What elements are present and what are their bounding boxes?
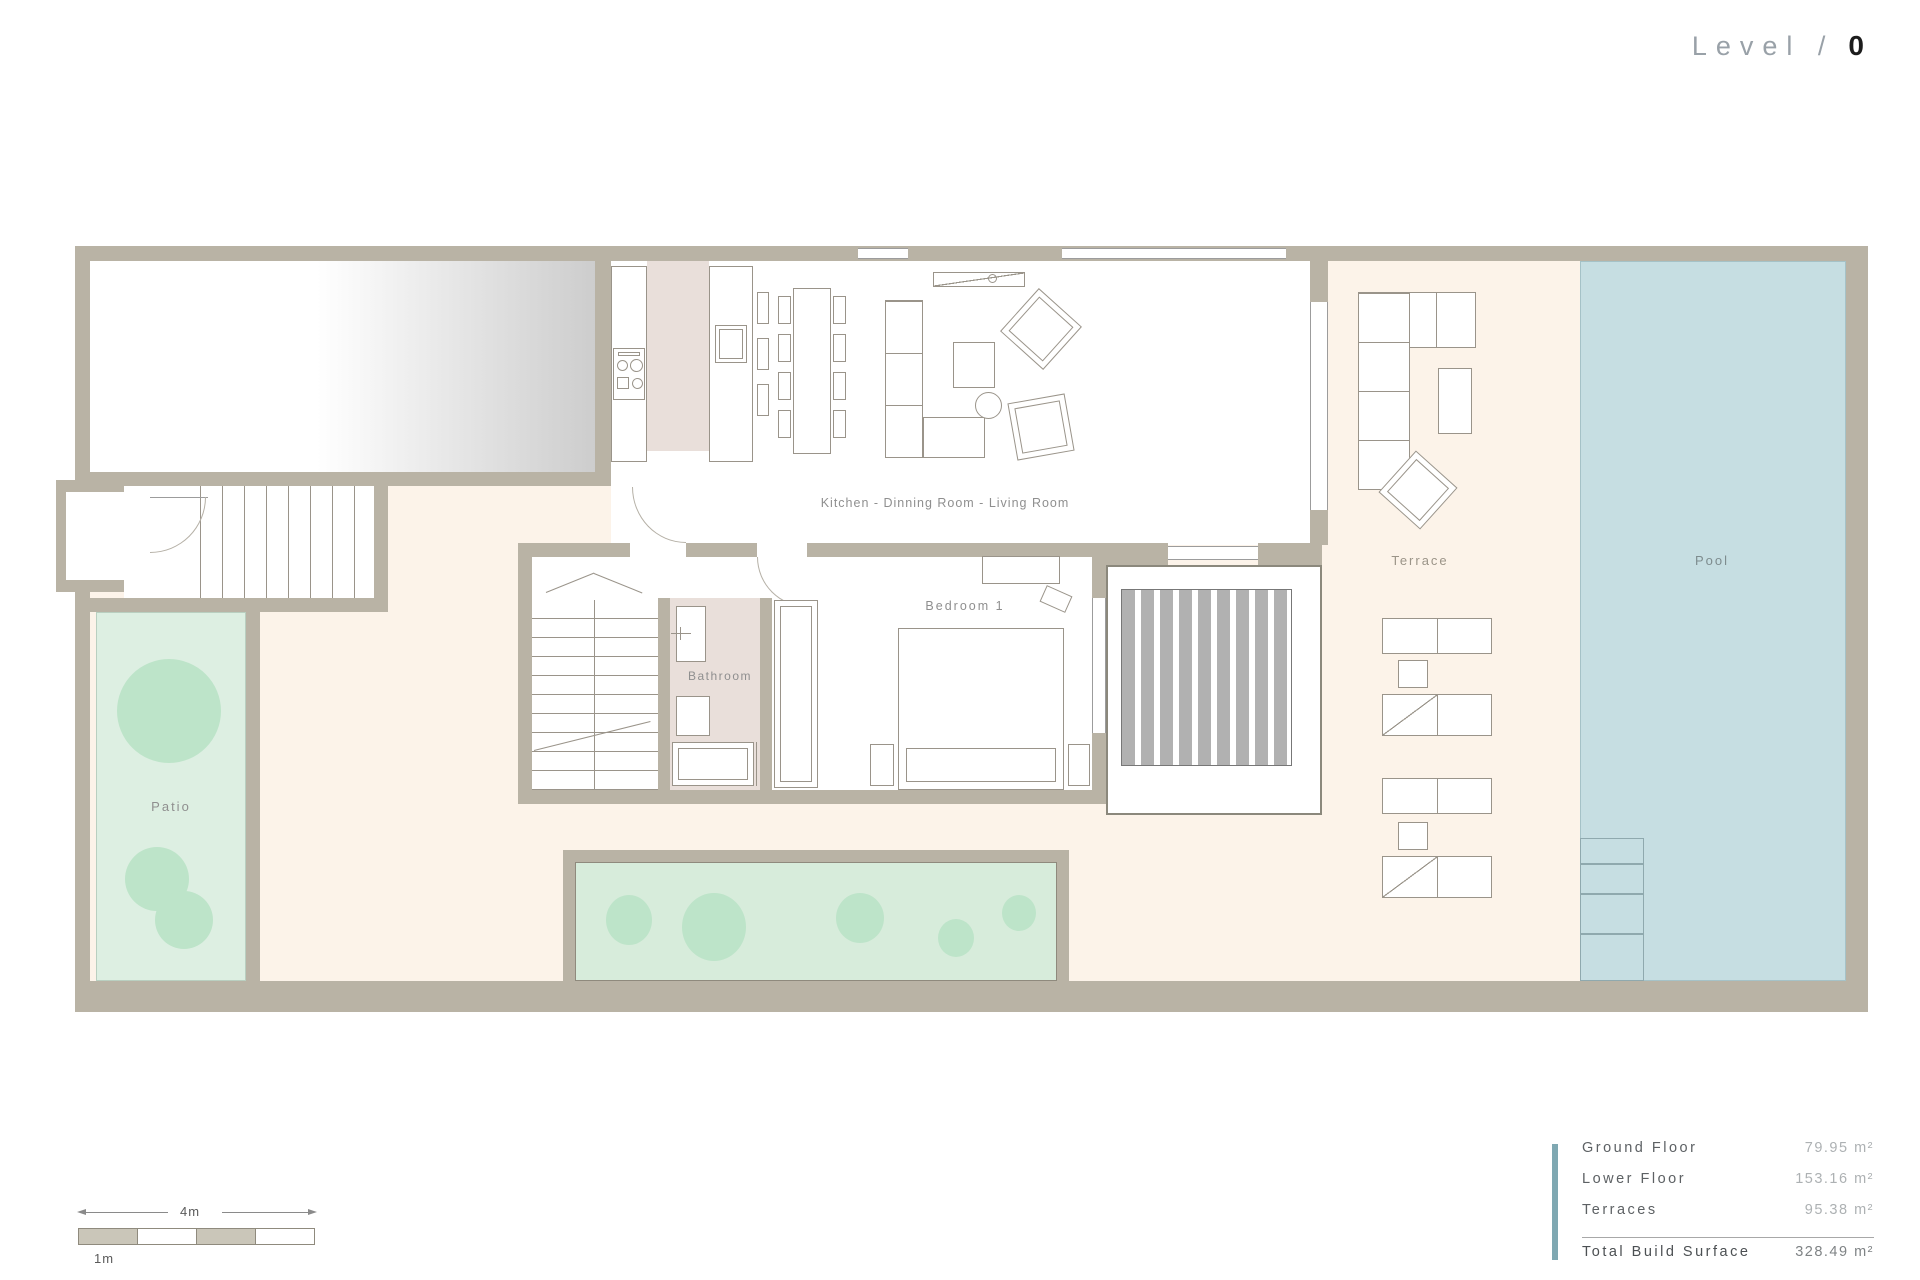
pool-steps xyxy=(1580,934,1644,981)
patio-bush xyxy=(155,891,213,949)
garage-wall-right xyxy=(595,261,611,486)
level-title-prefix: Level / xyxy=(1692,31,1835,62)
dining-chair xyxy=(833,410,846,438)
bedroom-sliding-door xyxy=(1092,598,1106,733)
dining-chair xyxy=(833,334,846,362)
stair-arrow xyxy=(546,572,644,596)
scale-segment xyxy=(137,1228,197,1245)
legend-accent-bar xyxy=(1552,1144,1558,1260)
bedroom-door-gap xyxy=(757,543,807,557)
tv-speaker xyxy=(988,274,997,283)
interior-stairs xyxy=(532,600,658,790)
bath-wardrobe-wall xyxy=(760,598,772,790)
patio-tree xyxy=(117,659,221,763)
pool-steps xyxy=(1580,894,1644,934)
area-legend: Ground Floor 79.95 m² Lower Floor 153.16… xyxy=(1552,1140,1874,1275)
pool-steps xyxy=(1580,864,1644,894)
garage-wall-bottom xyxy=(90,472,611,486)
legend-row-ground-floor: Ground Floor 79.95 m² xyxy=(1582,1140,1874,1171)
sun-loungers xyxy=(1382,778,1492,814)
planter-bush xyxy=(682,893,746,961)
legend-row-lower-floor: Lower Floor 153.16 m² xyxy=(1582,1171,1874,1202)
scale-segment xyxy=(78,1228,138,1245)
sun-loungers xyxy=(1382,694,1492,736)
living-bedroom-wall xyxy=(518,543,1106,557)
scale-segment xyxy=(255,1228,315,1245)
scale-segment xyxy=(196,1228,256,1245)
stairs-bath-wall xyxy=(658,598,670,790)
entry-wall-right xyxy=(374,486,388,612)
bed-pillows xyxy=(906,748,1056,782)
wardrobe xyxy=(774,600,818,788)
dining-chair xyxy=(778,334,791,362)
planter-bush xyxy=(606,895,652,945)
sofa-chaise xyxy=(923,417,985,458)
shower xyxy=(672,742,754,786)
dimension-line xyxy=(222,1212,314,1213)
lounger-table xyxy=(1398,660,1428,688)
patio-wall-right xyxy=(246,598,260,981)
site-wall-left xyxy=(75,246,90,1012)
level-number: 0 xyxy=(1848,30,1866,62)
lounger-table xyxy=(1398,822,1428,850)
legend-label: Terraces xyxy=(1582,1202,1658,1218)
bathroom-label: Bathroom xyxy=(668,669,772,683)
pool-label: Pool xyxy=(1662,553,1762,568)
kitchen-island xyxy=(709,266,753,462)
dimension-line xyxy=(80,1212,168,1213)
legend-value: 79.95 m² xyxy=(1805,1140,1874,1156)
legend-label: Total Build Surface xyxy=(1582,1244,1750,1260)
coffee-table xyxy=(953,342,995,388)
legend-label: Lower Floor xyxy=(1582,1171,1686,1187)
level-title: Level / 0 xyxy=(1692,30,1866,62)
lower-wall-left xyxy=(518,543,532,804)
scale-total-label: 4m xyxy=(180,1204,200,1219)
legend-divider xyxy=(1582,1237,1874,1238)
bar-stool xyxy=(757,384,769,416)
site-wall-top xyxy=(75,246,1868,261)
nightstand xyxy=(1068,744,1090,786)
living-window xyxy=(1310,302,1328,510)
tv-unit xyxy=(933,272,1025,287)
patio-label: Patio xyxy=(121,799,221,814)
legend-row-terraces: Terraces 95.38 m² xyxy=(1582,1202,1874,1233)
stove-icon xyxy=(613,348,645,400)
legend-value: 328.49 m² xyxy=(1795,1244,1874,1260)
courtyard-wall-top-right xyxy=(1258,543,1322,565)
toilet xyxy=(676,696,710,736)
bathroom-sink xyxy=(676,606,706,662)
garage-area xyxy=(90,261,595,472)
top-window xyxy=(1062,248,1286,259)
floor-plan-page: { "title": { "prefix": "Level /", "level… xyxy=(0,0,1920,1280)
deck-slats xyxy=(1121,589,1292,766)
stair-direction-line xyxy=(534,721,651,751)
sofa xyxy=(885,300,923,458)
dining-table xyxy=(793,288,831,454)
kitchen-living-label: Kitchen - Dinning Room - Living Room xyxy=(795,496,1095,510)
site-wall-right xyxy=(1846,246,1868,1012)
legend-label: Ground Floor xyxy=(1582,1140,1697,1156)
entry-wall-bottom xyxy=(90,598,388,612)
bar-stool xyxy=(757,338,769,370)
legend-row-total: Total Build Surface 328.49 m² xyxy=(1582,1244,1874,1275)
sun-loungers xyxy=(1382,618,1492,654)
terrace-side-table xyxy=(1438,368,1472,434)
pouf xyxy=(975,392,1002,419)
top-window xyxy=(858,248,908,259)
dining-chair xyxy=(833,372,846,400)
entry-porch-floor xyxy=(66,492,124,580)
courtyard-sliding-door xyxy=(1168,546,1258,560)
dining-chair xyxy=(778,372,791,400)
pool-steps xyxy=(1580,838,1644,864)
patio-area xyxy=(96,612,246,981)
armchair xyxy=(1007,393,1074,460)
scale-unit-label: 1m xyxy=(94,1251,114,1266)
hall-door-gap xyxy=(630,543,686,557)
dining-chair xyxy=(778,410,791,438)
planter-bed xyxy=(575,862,1057,981)
planter-bush xyxy=(1002,895,1036,931)
desk xyxy=(982,556,1060,584)
exterior-stairs xyxy=(200,486,374,598)
planter-bush xyxy=(836,893,884,943)
legend-value: 153.16 m² xyxy=(1795,1171,1874,1187)
kitchen-floor xyxy=(647,261,709,451)
nightstand xyxy=(870,744,894,786)
legend-value: 95.38 m² xyxy=(1805,1202,1874,1218)
terrace-sofa-v xyxy=(1358,292,1410,490)
dimension-arrow-left xyxy=(77,1209,86,1215)
site-wall-bottom xyxy=(75,981,1868,1012)
planter-bush xyxy=(938,919,974,957)
dining-chair xyxy=(778,296,791,324)
dining-chair xyxy=(833,296,846,324)
sun-loungers xyxy=(1382,856,1492,898)
bar-stool xyxy=(757,292,769,324)
lower-wall-bottom xyxy=(518,790,1120,804)
bedroom-label: Bedroom 1 xyxy=(915,599,1015,613)
courtyard-wall-top-left xyxy=(1106,543,1168,565)
dimension-arrow-right xyxy=(308,1209,317,1215)
terrace-label: Terrace xyxy=(1370,553,1470,568)
